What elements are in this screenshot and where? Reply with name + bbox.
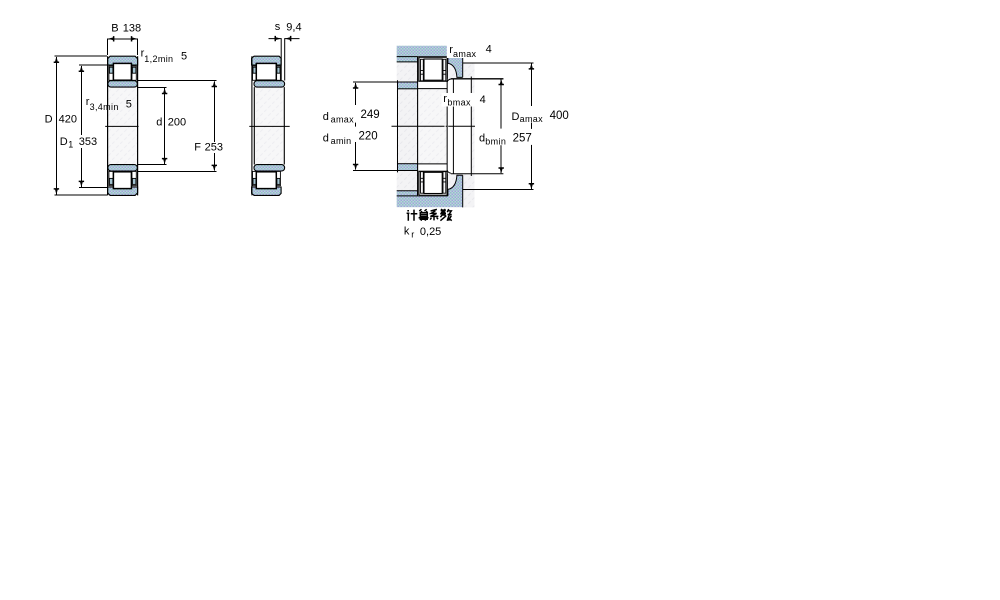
svg-text:9,4: 9,4 bbox=[286, 21, 301, 33]
svg-text:353: 353 bbox=[79, 136, 97, 148]
svg-text:amin: amin bbox=[331, 136, 352, 146]
svg-text:D: D bbox=[512, 111, 520, 123]
svg-text:d: d bbox=[323, 111, 329, 123]
svg-text:amax: amax bbox=[453, 49, 477, 59]
svg-text:5: 5 bbox=[126, 98, 132, 110]
svg-text:bmax: bmax bbox=[447, 97, 471, 107]
svg-text:253: 253 bbox=[205, 142, 223, 154]
svg-text:k: k bbox=[404, 226, 410, 238]
svg-text:200: 200 bbox=[168, 116, 186, 128]
svg-text:d: d bbox=[156, 116, 162, 128]
svg-text:5: 5 bbox=[181, 51, 187, 63]
svg-text:138: 138 bbox=[123, 23, 141, 35]
svg-text:B: B bbox=[111, 23, 118, 35]
svg-text:s: s bbox=[275, 21, 281, 33]
svg-text:d: d bbox=[323, 132, 329, 144]
svg-text:bmin: bmin bbox=[485, 136, 506, 146]
svg-text:249: 249 bbox=[361, 109, 380, 121]
svg-text:4: 4 bbox=[486, 43, 492, 55]
svg-text:amax: amax bbox=[331, 114, 355, 124]
svg-text:F: F bbox=[194, 142, 201, 154]
svg-text:400: 400 bbox=[550, 110, 569, 122]
svg-text:4: 4 bbox=[480, 94, 486, 106]
svg-text:420: 420 bbox=[59, 114, 77, 126]
svg-text:1,2min: 1,2min bbox=[144, 54, 173, 64]
svg-text:d: d bbox=[479, 132, 485, 144]
svg-text:r: r bbox=[411, 230, 414, 240]
svg-text:3,4min: 3,4min bbox=[90, 102, 119, 112]
svg-text:257: 257 bbox=[513, 132, 532, 144]
svg-text:amax: amax bbox=[520, 114, 544, 124]
svg-text:D: D bbox=[45, 114, 53, 126]
svg-text:D: D bbox=[60, 136, 68, 148]
svg-text:1: 1 bbox=[68, 140, 73, 150]
svg-text:0,25: 0,25 bbox=[420, 226, 441, 238]
svg-text:220: 220 bbox=[359, 130, 378, 142]
